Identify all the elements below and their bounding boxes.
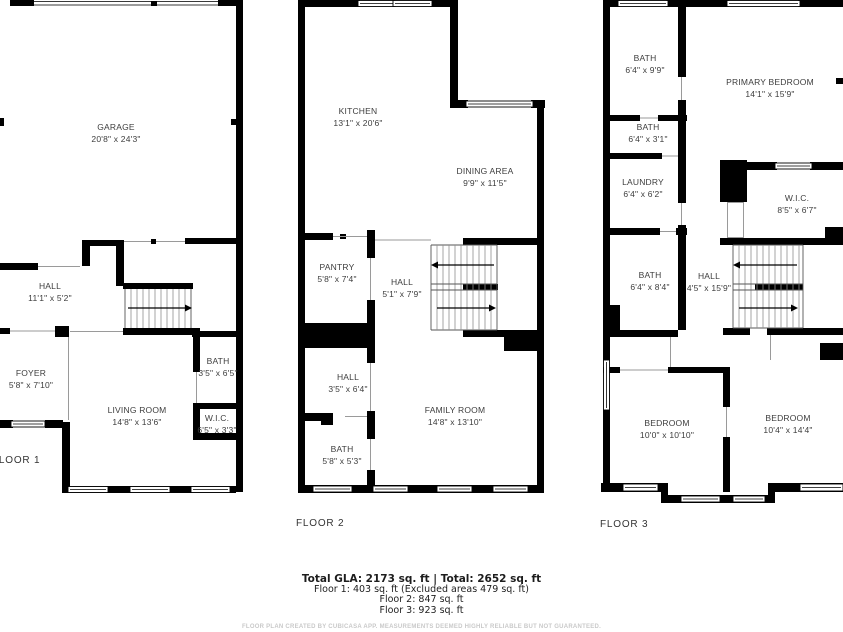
room-label-hall-f3: HALL 4'5" x 15'9" <box>687 270 731 294</box>
room-label-bath2-f3: BATH 6'4" x 3'1" <box>628 121 667 145</box>
room-name: BATH <box>322 443 361 455</box>
room-name: LAUNDRY <box>622 176 664 188</box>
room-name: PRIMARY BEDROOM <box>726 76 814 88</box>
room-dims: 6'4" x 8'4" <box>630 281 669 293</box>
room-dims: 6'4" x 3'1" <box>628 133 667 145</box>
room-label-bath3-f3: BATH 6'4" x 8'4" <box>630 269 669 293</box>
room-dims: 20'8" x 24'3" <box>91 133 140 145</box>
room-dims: 3'5" x 6'4" <box>328 383 367 395</box>
disclaimer-text: FLOOR PLAN CREATED BY CUBICASA APP. MEAS… <box>0 624 843 630</box>
room-name: BEDROOM <box>640 417 694 429</box>
room-dims: 6'4" x 9'9" <box>625 64 664 76</box>
room-label-foyer: FOYER 5'8" x 7'10" <box>9 367 53 391</box>
area-summary: Total GLA: 2173 sq. ft | Total: 2652 sq.… <box>0 573 843 616</box>
room-dims: 5'1" x 7'9" <box>382 288 421 300</box>
room-label-dining-area: DINING AREA 9'9" x 11'5" <box>457 165 514 189</box>
room-label-bath1-f3: BATH 6'4" x 9'9" <box>625 52 664 76</box>
room-dims: 5'8" x 7'4" <box>317 273 356 285</box>
room-dims: 8'5" x 6'7" <box>777 204 816 216</box>
room-label-kitchen: KITCHEN 13'1" x 20'6" <box>333 105 382 129</box>
room-name: GARAGE <box>91 121 140 133</box>
room-name: BATH <box>628 121 667 133</box>
room-dims: 6'5" x 3'3" <box>197 424 236 436</box>
floor3-area-line: Floor 3: 923 sq. ft <box>0 606 843 616</box>
floor-3-caption: FLOOR 3 <box>600 519 648 530</box>
room-name: PANTRY <box>317 261 356 273</box>
room-dims: 13'1" x 20'6" <box>333 117 382 129</box>
room-dims: 11'1" x 5'2" <box>28 292 72 304</box>
room-label-laundry: LAUNDRY 6'4" x 6'2" <box>622 176 664 200</box>
room-label-bedroom2: BEDROOM 10'4" x 14'4" <box>763 412 812 436</box>
floor-2-caption: FLOOR 2 <box>296 518 344 529</box>
room-name: W.I.C. <box>777 192 816 204</box>
room-dims: 14'8" x 13'10" <box>425 416 485 428</box>
room-label-garage: GARAGE 20'8" x 24'3" <box>91 121 140 145</box>
room-dims: 5'8" x 7'10" <box>9 379 53 391</box>
room-name: FAMILY ROOM <box>425 404 485 416</box>
room-dims: 6'4" x 6'2" <box>622 188 664 200</box>
room-name: BATH <box>198 355 237 367</box>
floor-plan-canvas: GARAGE 20'8" x 24'3" HALL 11'1" x 5'2" F… <box>0 0 843 632</box>
room-label-family-room: FAMILY ROOM 14'8" x 13'10" <box>425 404 485 428</box>
room-name: LIVING ROOM <box>108 404 167 416</box>
room-label-bath-f2: BATH 5'8" x 5'3" <box>322 443 361 467</box>
room-dims: 4'5" x 15'9" <box>687 282 731 294</box>
room-label-wic-f1: W.I.C. 6'5" x 3'3" <box>197 412 236 436</box>
room-dims: 10'0" x 10'10" <box>640 429 694 441</box>
room-name: HALL <box>28 280 72 292</box>
room-label-bedroom1: BEDROOM 10'0" x 10'10" <box>640 417 694 441</box>
room-dims: 10'4" x 14'4" <box>763 424 812 436</box>
floor-plan-walls-drawing <box>0 0 843 632</box>
room-dims: 14'1" x 15'9" <box>726 88 814 100</box>
room-label-hall-f2: HALL 5'1" x 7'9" <box>382 276 421 300</box>
room-name: BATH <box>630 269 669 281</box>
room-name: W.I.C. <box>197 412 236 424</box>
room-label-pantry: PANTRY 5'8" x 7'4" <box>317 261 356 285</box>
room-name: HALL <box>328 371 367 383</box>
room-name: FOYER <box>9 367 53 379</box>
room-label-wic-f3: W.I.C. 8'5" x 6'7" <box>777 192 816 216</box>
room-name: KITCHEN <box>333 105 382 117</box>
room-label-hall-small-f2: HALL 3'5" x 6'4" <box>328 371 367 395</box>
room-dims: 9'9" x 11'5" <box>457 177 514 189</box>
room-name: BEDROOM <box>763 412 812 424</box>
room-name: DINING AREA <box>457 165 514 177</box>
floor-1-caption: FLOOR 1 <box>0 455 40 466</box>
room-dims: 14'8" x 13'6" <box>108 416 167 428</box>
room-label-hall-f1: HALL 11'1" x 5'2" <box>28 280 72 304</box>
room-label-bath-f1: BATH 3'5" x 6'5" <box>198 355 237 379</box>
room-dims: 3'5" x 6'5" <box>198 367 237 379</box>
room-label-primary-bedroom: PRIMARY BEDROOM 14'1" x 15'9" <box>726 76 814 100</box>
room-dims: 5'8" x 5'3" <box>322 455 361 467</box>
room-name: HALL <box>687 270 731 282</box>
room-label-living-room: LIVING ROOM 14'8" x 13'6" <box>108 404 167 428</box>
room-name: HALL <box>382 276 421 288</box>
room-name: BATH <box>625 52 664 64</box>
